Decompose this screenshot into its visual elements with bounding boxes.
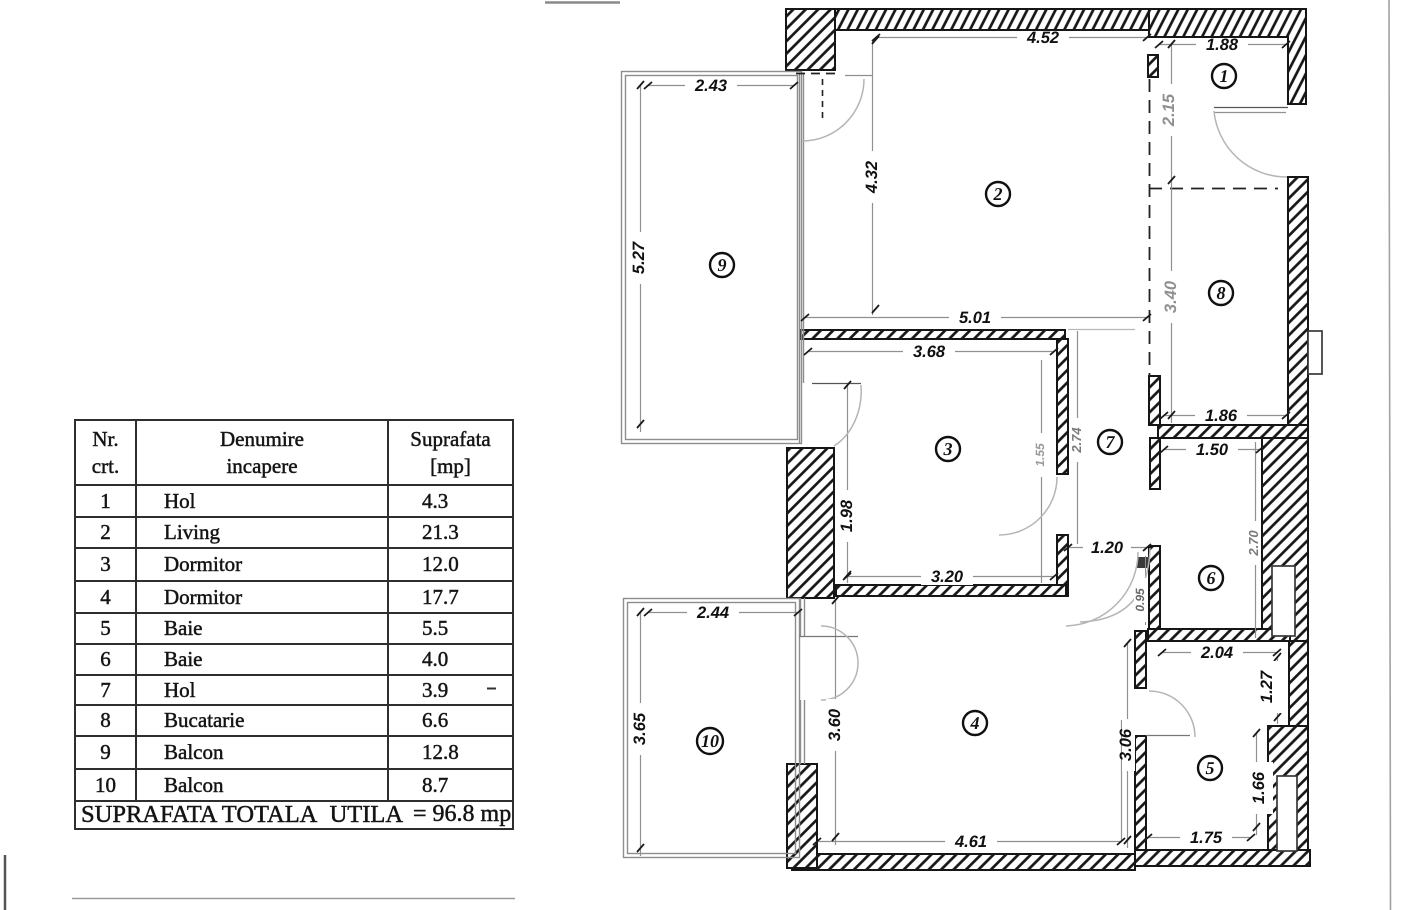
svg-text:4.32: 4.32 xyxy=(863,161,881,194)
svg-text:1: 1 xyxy=(1220,66,1229,86)
svg-text:1.55: 1.55 xyxy=(1033,443,1047,467)
svg-text:3.20: 3.20 xyxy=(931,568,964,586)
svg-text:1.50: 1.50 xyxy=(1196,441,1229,459)
svg-text:1.86: 1.86 xyxy=(1205,407,1238,425)
svg-text:8: 8 xyxy=(1217,283,1226,303)
svg-text:2.44: 2.44 xyxy=(696,604,729,622)
svg-text:2: 2 xyxy=(993,184,1003,204)
svg-text:4.52: 4.52 xyxy=(1026,29,1059,47)
svg-text:10: 10 xyxy=(701,731,719,751)
svg-text:2.43: 2.43 xyxy=(694,77,727,95)
svg-text:3.65: 3.65 xyxy=(631,712,649,745)
svg-text:9: 9 xyxy=(718,255,727,275)
svg-text:1.75: 1.75 xyxy=(1190,829,1223,847)
svg-text:1.98: 1.98 xyxy=(838,499,856,532)
svg-text:3.68: 3.68 xyxy=(913,343,946,361)
svg-text:7: 7 xyxy=(1106,432,1116,452)
svg-text:1.20: 1.20 xyxy=(1091,539,1124,557)
svg-text:5: 5 xyxy=(1206,758,1215,778)
svg-text:3.40: 3.40 xyxy=(1162,280,1180,313)
svg-text:0.95: 0.95 xyxy=(1133,588,1147,612)
svg-text:4: 4 xyxy=(970,713,980,733)
svg-text:5.27: 5.27 xyxy=(630,241,648,274)
svg-text:3.06: 3.06 xyxy=(1117,728,1135,761)
svg-text:4.61: 4.61 xyxy=(954,833,987,851)
svg-text:2.74: 2.74 xyxy=(1069,427,1084,454)
svg-text:2.04: 2.04 xyxy=(1200,644,1233,662)
svg-text:1.88: 1.88 xyxy=(1206,36,1239,54)
svg-text:1.27: 1.27 xyxy=(1258,670,1276,703)
svg-text:1.66: 1.66 xyxy=(1250,771,1268,804)
svg-text:2.70: 2.70 xyxy=(1246,530,1261,557)
svg-text:6: 6 xyxy=(1207,568,1216,588)
svg-text:5.01: 5.01 xyxy=(959,309,991,327)
svg-text:3.60: 3.60 xyxy=(826,708,844,741)
svg-text:2.15: 2.15 xyxy=(1160,93,1178,127)
svg-text:3: 3 xyxy=(943,439,953,459)
